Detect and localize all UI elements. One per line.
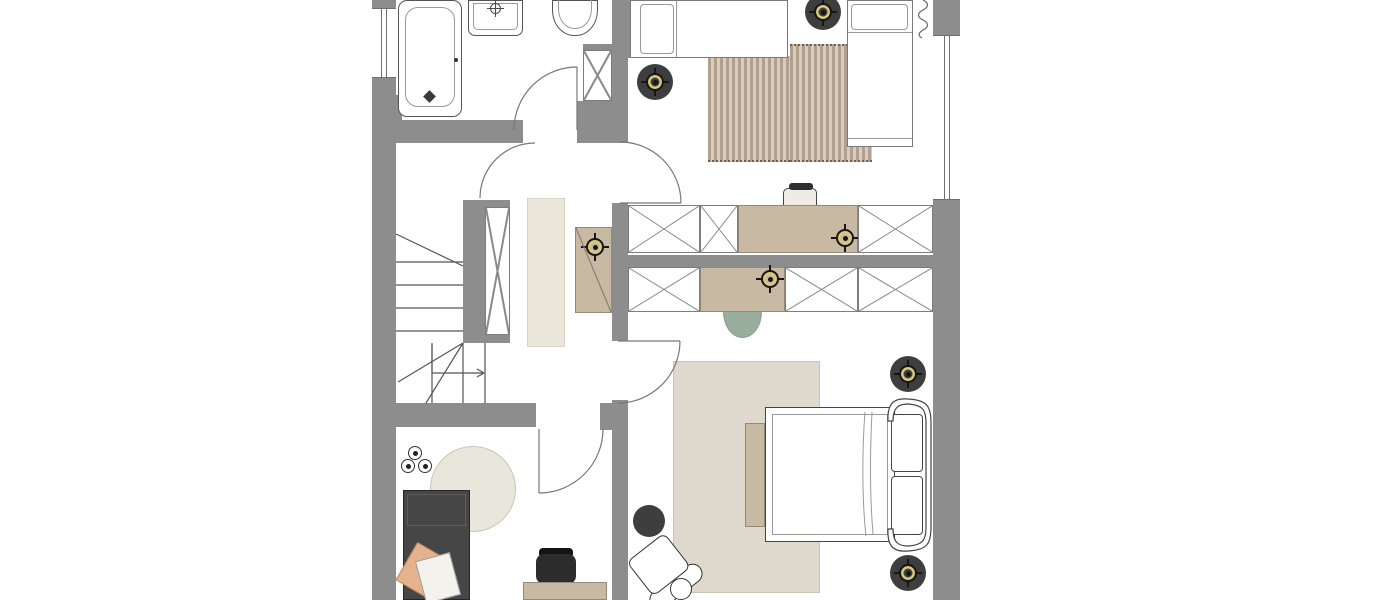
wardrobe-x — [628, 267, 700, 312]
window-glazing — [949, 36, 950, 199]
ceiling-light-disc — [890, 356, 926, 392]
wall-right-main — [933, 200, 960, 600]
bathtub-faucet-dot — [454, 58, 458, 62]
bed-bench — [745, 423, 765, 527]
wall-center-mid — [612, 203, 628, 341]
side-table-round — [670, 578, 692, 600]
window-right — [933, 35, 960, 200]
wall-center-top — [612, 0, 628, 103]
light-center-dot — [843, 236, 848, 241]
light-center-dot — [653, 80, 658, 85]
sage-wall-table — [723, 312, 762, 338]
bed2-pillow — [851, 4, 908, 30]
wardrobe-x — [628, 205, 700, 253]
wall-bath-corner — [577, 101, 628, 143]
faucet-icon — [490, 3, 501, 14]
ceiling-light-symbol-dresser — [761, 270, 779, 288]
ceiling-light-symbol — [814, 3, 832, 21]
ceiling-light-symbol — [646, 73, 664, 91]
ceiling-light-disc — [805, 0, 841, 30]
pendant-lamp-bulb — [418, 459, 432, 473]
wall-left-top — [372, 0, 396, 8]
light-center-dot — [593, 245, 598, 250]
stair-direction-arrow — [432, 345, 484, 377]
stair-core-left — [463, 200, 485, 343]
bedroom-lower-door — [618, 341, 680, 403]
ceiling-light-symbol-desk — [836, 229, 854, 247]
wardrobe-x — [858, 267, 933, 312]
office-desk — [523, 582, 607, 600]
light-center-dot — [906, 372, 911, 377]
wall-left-main — [372, 78, 396, 600]
ceiling-light-disc — [890, 555, 926, 591]
office-door — [539, 429, 603, 493]
wardrobe-x — [785, 267, 858, 312]
ceiling-light-symbol — [899, 365, 917, 383]
window-glazing — [381, 9, 382, 77]
window-glazing — [944, 36, 945, 199]
bed-pillow-top — [891, 414, 923, 472]
curtain-squiggle — [919, 0, 928, 38]
stair-shaft-x — [485, 207, 510, 335]
pendant-lamp-bulb — [408, 446, 422, 460]
bed2-blanket-line — [848, 32, 912, 33]
light-center-dot — [768, 277, 773, 282]
pendant-lamp-bulb — [401, 459, 415, 473]
bathroom-door — [514, 67, 577, 130]
wardrobe-x — [700, 205, 738, 253]
bed2-foot-line — [848, 138, 912, 139]
runner-rug — [527, 198, 565, 347]
bed-pillow-bottom — [891, 476, 923, 535]
bed1-blanket-edge — [676, 1, 677, 57]
bathroom-tall-cabinet — [583, 50, 612, 101]
wall-hall-south — [372, 403, 536, 427]
ceiling-light-symbol-hall — [586, 238, 604, 256]
stair-core-bottom — [463, 335, 510, 343]
bedroom-upper-door — [620, 142, 681, 203]
daybed-cushion-line — [407, 494, 466, 526]
ceiling-light-symbol — [899, 564, 917, 582]
wall-bath-south — [396, 120, 523, 143]
wardrobe-x — [858, 205, 933, 253]
light-center-dot — [821, 10, 826, 15]
window-glazing — [386, 9, 387, 77]
window-left — [372, 8, 396, 78]
hall-door-arc — [480, 143, 535, 198]
wall-right-top — [933, 0, 960, 35]
wall-hall-south-stub — [600, 403, 628, 430]
desk-chair-back — [789, 183, 813, 190]
ceiling-light-disc — [637, 64, 673, 100]
bed1-pillow — [640, 4, 674, 54]
striped-rug-left — [708, 56, 790, 162]
double-bed-mattress — [772, 414, 888, 535]
light-center-dot — [906, 571, 911, 576]
floorplan-canvas — [0, 0, 1400, 600]
office-chair-seat — [536, 554, 576, 584]
